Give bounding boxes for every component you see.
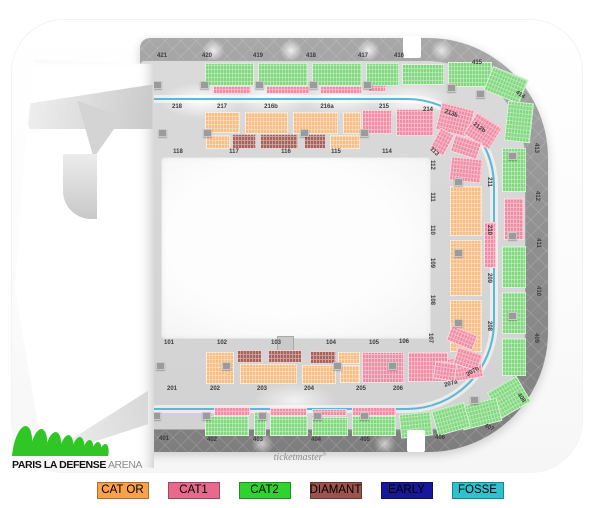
- section-label-404: 404: [311, 437, 321, 443]
- section-label-421: 421: [157, 53, 167, 59]
- section-label-202: 202: [210, 386, 220, 392]
- section-label-218: 218: [172, 104, 182, 110]
- section-label-102: 102: [217, 340, 227, 346]
- section-label-403: 403: [253, 437, 263, 443]
- section-label-210: 210: [486, 225, 492, 235]
- section-label-207a: 207a: [444, 379, 458, 388]
- section-label-407: 407: [483, 423, 495, 433]
- section-label-211: 211: [486, 177, 492, 187]
- section-label-215: 215: [379, 104, 389, 110]
- section-label-108: 108: [429, 295, 435, 305]
- section-label-401: 401: [159, 436, 169, 442]
- section-label-415: 415: [472, 60, 482, 66]
- section-label-410: 410: [535, 286, 541, 296]
- section-label-101: 101: [164, 340, 174, 346]
- section-label-117: 117: [229, 149, 239, 155]
- building-facet: [63, 154, 97, 219]
- section-label-205: 205: [356, 386, 366, 392]
- section-label-104: 104: [326, 340, 336, 346]
- section-label-420: 420: [202, 53, 212, 59]
- section-label-213b: 213b: [444, 109, 459, 119]
- arena-logo-text: PARIS LA DEFENSEARENA: [12, 459, 142, 471]
- section-label-408: 408: [516, 392, 527, 404]
- section-label-418: 418: [306, 53, 316, 59]
- section-label-206: 206: [393, 386, 403, 392]
- section-label-115: 115: [331, 149, 341, 155]
- seatmap-page: 4214204194184174164154144134124114104094…: [0, 0, 600, 508]
- section-label-214: 214: [423, 107, 433, 113]
- section-label-203: 203: [257, 386, 267, 392]
- section-label-217: 217: [217, 104, 227, 110]
- arena-logo-light: ARENA: [108, 459, 142, 471]
- section-label-411: 411: [535, 238, 541, 248]
- section-label-216b: 216b: [264, 104, 278, 110]
- section-label-409: 409: [533, 333, 539, 343]
- section-label-413: 413: [533, 143, 539, 153]
- section-label-118: 118: [173, 149, 183, 155]
- section-label-201: 201: [167, 386, 177, 392]
- section-label-116: 116: [281, 149, 291, 155]
- section-label-110: 110: [429, 225, 435, 235]
- section-label-112: 112: [429, 160, 435, 170]
- section-label-107: 107: [427, 333, 433, 343]
- section-label-416: 416: [394, 53, 404, 59]
- section-label-106: 106: [399, 339, 409, 345]
- section-label-212b: 212b: [472, 122, 487, 135]
- section-label-209: 209: [486, 273, 492, 283]
- section-label-412: 412: [534, 191, 540, 201]
- section-label-105: 105: [369, 340, 379, 346]
- section-label-208: 208: [486, 321, 492, 331]
- section-label-405: 405: [360, 437, 370, 443]
- arena-logo-bold: PARIS LA DEFENSE: [12, 459, 106, 471]
- section-label-204: 204: [304, 386, 314, 392]
- section-label-111: 111: [429, 192, 435, 201]
- arena-logo: PARIS LA DEFENSEARENA: [10, 423, 160, 471]
- section-label-417: 417: [358, 53, 368, 59]
- section-label-216a: 216a: [320, 104, 333, 110]
- section-label-103: 103: [271, 340, 281, 346]
- section-label-402: 402: [207, 437, 217, 443]
- section-label-419: 419: [253, 53, 263, 59]
- section-label-406: 406: [435, 435, 445, 441]
- section-label-114: 114: [382, 149, 392, 155]
- section-label-414: 414: [514, 90, 526, 101]
- section-label-113: 113: [428, 146, 439, 157]
- section-label-207b: 207b: [466, 366, 481, 378]
- section-label-109: 109: [429, 258, 435, 268]
- arena-logo-waves-icon: [14, 426, 107, 456]
